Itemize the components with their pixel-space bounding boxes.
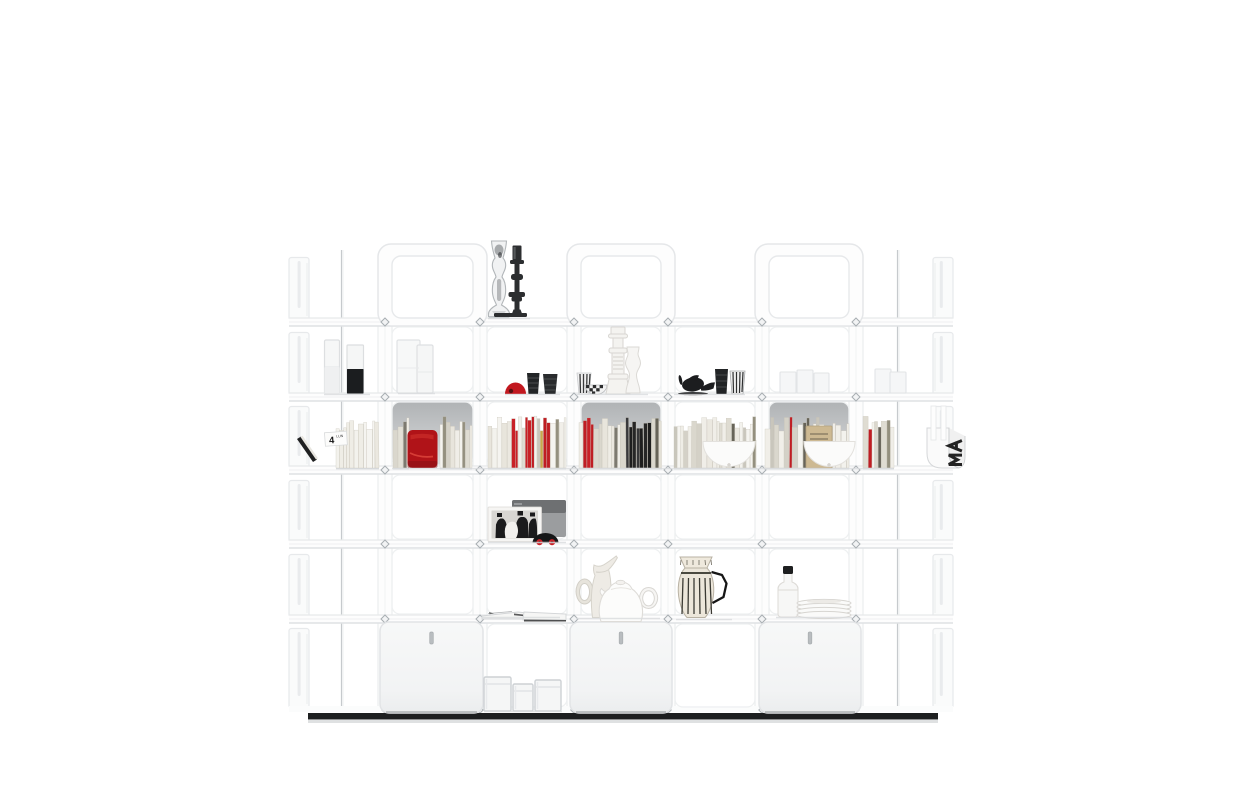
- svg-text:LUN: LUN: [336, 434, 344, 439]
